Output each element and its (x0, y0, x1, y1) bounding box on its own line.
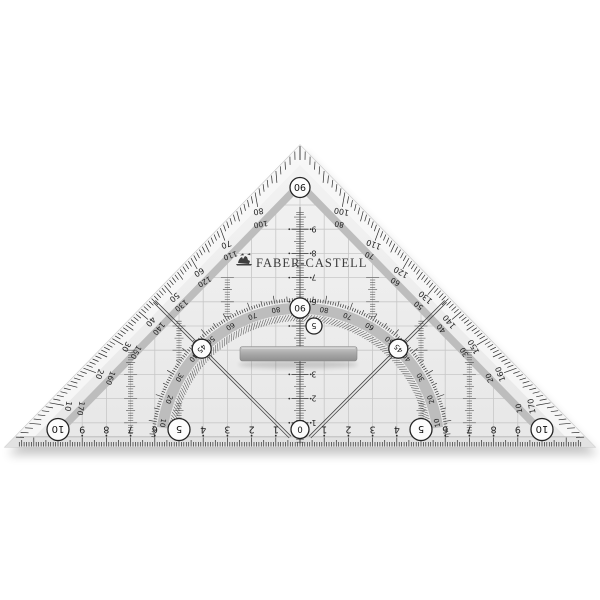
svg-text:9: 9 (79, 424, 85, 435)
svg-text:4: 4 (200, 424, 206, 435)
handle-bar (238, 347, 358, 369)
svg-text:9: 9 (515, 424, 521, 435)
product-photo-canvas: 8010070110601205013040140301502016010170… (0, 0, 600, 600)
svg-text:10: 10 (158, 418, 167, 428)
svg-text:7: 7 (466, 424, 472, 435)
brand-logo: FABER-CASTELL (236, 253, 367, 270)
set-square-svg: 8010070110601205013040140301502016010170… (0, 0, 600, 600)
svg-text:80: 80 (334, 219, 345, 230)
svg-text:1: 1 (321, 424, 327, 435)
svg-text:10: 10 (63, 400, 74, 412)
svg-text:10: 10 (433, 418, 442, 428)
svg-text:8: 8 (103, 424, 109, 435)
svg-text:2: 2 (311, 394, 316, 403)
svg-text:80: 80 (319, 305, 329, 314)
svg-text:80: 80 (253, 206, 265, 217)
brand-name: FABER-CASTELL (256, 256, 367, 270)
ruler-10-right-label: 10 (536, 423, 549, 434)
svg-text:6: 6 (152, 424, 158, 435)
arc-90-label: 90 (294, 302, 306, 312)
svg-text:1: 1 (273, 424, 279, 435)
svg-text:4: 4 (394, 424, 400, 435)
svg-text:7: 7 (311, 273, 316, 282)
svg-text:10: 10 (514, 403, 525, 414)
svg-text:6: 6 (442, 424, 448, 435)
ruler-5-right-label: 5 (418, 423, 424, 434)
handle-shadow (238, 361, 358, 369)
ruler-5-left-label: 5 (176, 423, 182, 434)
center-scale-5-label: 5 (311, 321, 316, 330)
ruler-0-label: 0 (297, 424, 302, 434)
svg-text:9: 9 (311, 224, 316, 233)
svg-text:6: 6 (311, 297, 316, 306)
svg-text:2: 2 (345, 424, 351, 435)
svg-text:3: 3 (370, 424, 376, 435)
svg-text:80: 80 (271, 305, 281, 314)
svg-text:3: 3 (224, 424, 230, 435)
ruler-10-left-label: 10 (52, 423, 65, 434)
svg-text:1: 1 (311, 418, 316, 427)
svg-text:8: 8 (491, 424, 497, 435)
svg-text:7: 7 (128, 424, 134, 435)
svg-text:2: 2 (249, 424, 255, 435)
svg-text:3: 3 (311, 370, 316, 379)
apex-90-label: 90 (294, 181, 306, 192)
